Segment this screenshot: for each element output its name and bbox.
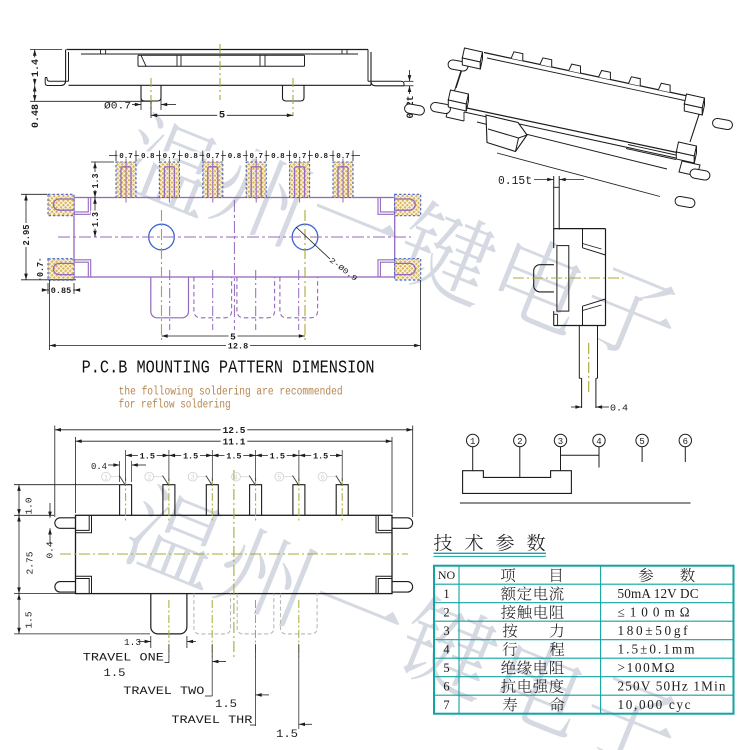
svg-text:6: 6 bbox=[683, 437, 688, 447]
svg-text:TRAVEL THR: TRAVEL THR bbox=[171, 715, 252, 727]
svg-text:2.95: 2.95 bbox=[22, 225, 32, 246]
svg-text:TRAVEL ONE: TRAVEL ONE bbox=[83, 653, 164, 665]
svg-text:12.8: 12.8 bbox=[228, 342, 248, 352]
svg-text:5: 5 bbox=[219, 109, 225, 121]
svg-text:1.5: 1.5 bbox=[270, 452, 285, 462]
svg-text:5: 5 bbox=[639, 437, 644, 447]
svg-text:1: 1 bbox=[470, 437, 475, 447]
svg-text:1.5: 1.5 bbox=[183, 452, 198, 462]
svg-text:6: 6 bbox=[443, 680, 449, 694]
svg-text:0.7: 0.7 bbox=[249, 153, 263, 161]
svg-text:3: 3 bbox=[443, 624, 449, 638]
svg-text:0.7: 0.7 bbox=[36, 262, 46, 277]
svg-text:1.5: 1.5 bbox=[140, 452, 155, 462]
svg-text:0.15t: 0.15t bbox=[498, 175, 532, 188]
svg-text:7: 7 bbox=[443, 698, 449, 712]
svg-text:4: 4 bbox=[596, 437, 601, 447]
svg-text:0.8: 0.8 bbox=[271, 153, 285, 161]
svg-text:4: 4 bbox=[443, 643, 450, 657]
svg-text:TRAVEL TWO: TRAVEL TWO bbox=[123, 686, 204, 698]
svg-text:NO: NO bbox=[438, 568, 456, 582]
svg-text:0.8: 0.8 bbox=[184, 153, 198, 161]
svg-text:for reflow soldering: for reflow soldering bbox=[119, 398, 231, 411]
svg-text:2: 2 bbox=[147, 475, 151, 483]
svg-text:0.7: 0.7 bbox=[293, 153, 307, 161]
svg-text:1.5: 1.5 bbox=[226, 452, 241, 462]
svg-text:1.3: 1.3 bbox=[91, 174, 101, 189]
svg-text:1.5: 1.5 bbox=[104, 668, 126, 680]
svg-text:11.1: 11.1 bbox=[223, 437, 246, 448]
svg-text:>100MΩ: >100MΩ bbox=[618, 660, 675, 675]
svg-text:1.4: 1.4 bbox=[31, 59, 42, 77]
svg-text:0.4: 0.4 bbox=[45, 541, 56, 558]
svg-text:5: 5 bbox=[443, 661, 449, 675]
svg-text:0.8: 0.8 bbox=[141, 153, 155, 161]
svg-text:the following soldering are re: the following soldering are recommended bbox=[119, 385, 343, 398]
svg-text:0.4: 0.4 bbox=[610, 403, 628, 414]
svg-text:4: 4 bbox=[234, 475, 238, 483]
svg-text:2: 2 bbox=[443, 606, 449, 620]
svg-text:6: 6 bbox=[320, 475, 324, 483]
svg-text:50mA 12V DC: 50mA 12V DC bbox=[618, 586, 699, 601]
svg-text:0.4: 0.4 bbox=[91, 461, 107, 472]
svg-text:3: 3 bbox=[191, 475, 195, 483]
svg-text:0.7: 0.7 bbox=[119, 153, 133, 161]
svg-text:1.3: 1.3 bbox=[91, 212, 101, 227]
svg-text:1: 1 bbox=[104, 475, 108, 483]
svg-text:5: 5 bbox=[277, 475, 281, 483]
svg-text:0.8: 0.8 bbox=[228, 153, 242, 161]
svg-text:1.0: 1.0 bbox=[24, 497, 35, 514]
svg-text:250V 50Hz 1Min: 250V 50Hz 1Min bbox=[618, 679, 726, 694]
svg-text:3: 3 bbox=[558, 437, 563, 447]
svg-text:2: 2 bbox=[517, 437, 522, 447]
svg-text:0.7: 0.7 bbox=[163, 153, 177, 161]
svg-text:1.5: 1.5 bbox=[215, 699, 237, 711]
svg-text:1: 1 bbox=[443, 587, 449, 601]
svg-text:1.5: 1.5 bbox=[24, 611, 35, 628]
svg-text:0.8: 0.8 bbox=[315, 153, 329, 161]
svg-text:1.3: 1.3 bbox=[124, 637, 141, 648]
svg-text:12.5: 12.5 bbox=[223, 425, 246, 436]
svg-text:0.7: 0.7 bbox=[336, 153, 350, 161]
svg-text:0.7: 0.7 bbox=[206, 153, 220, 161]
svg-text:2.75: 2.75 bbox=[25, 551, 36, 574]
svg-text:0.85: 0.85 bbox=[51, 286, 71, 296]
svg-text:1.5: 1.5 bbox=[313, 452, 328, 462]
svg-text:Ø0.7: Ø0.7 bbox=[104, 101, 131, 113]
svg-text:1.5: 1.5 bbox=[276, 729, 298, 741]
svg-text:P.C.B MOUNTING PATTERN DIMENSI: P.C.B MOUNTING PATTERN DIMENSION bbox=[82, 358, 375, 379]
svg-text:0.48: 0.48 bbox=[31, 104, 42, 128]
